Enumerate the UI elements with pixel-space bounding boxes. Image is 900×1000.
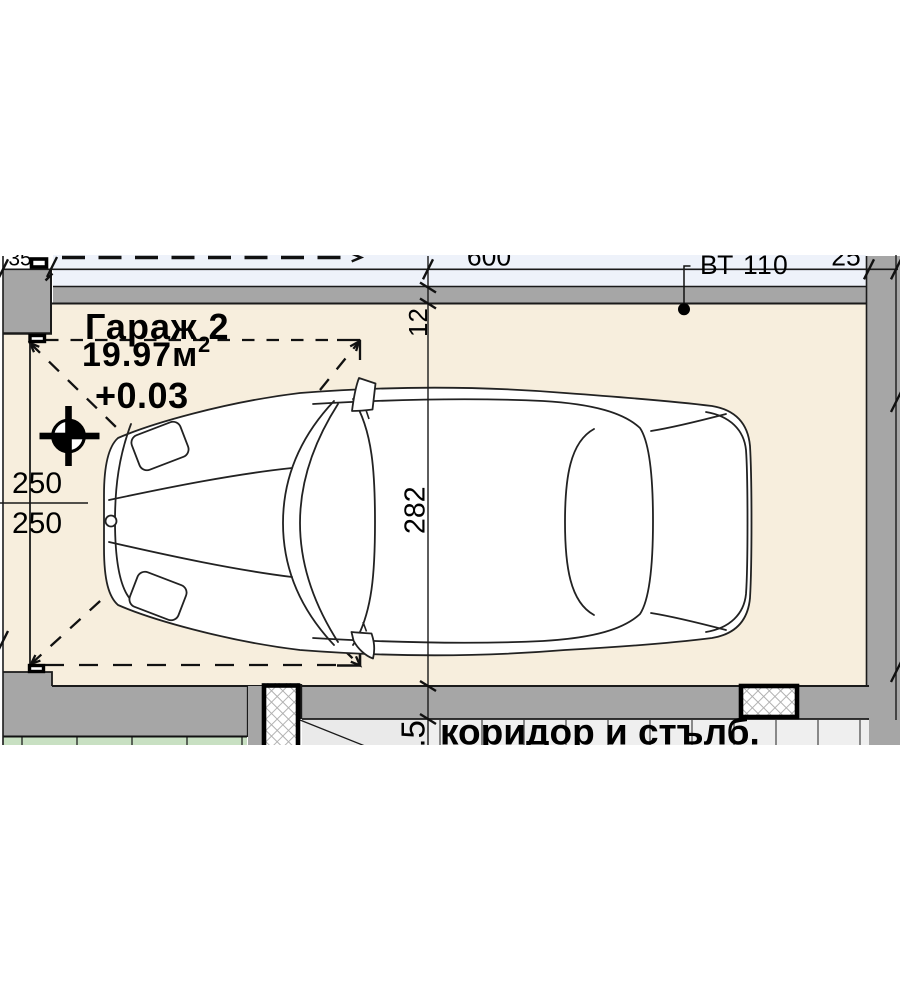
svg-text:282: 282 [400,486,432,534]
svg-text:250: 250 [12,467,62,500]
svg-text:2: 2 [198,332,210,357]
svg-text:250: 250 [12,507,62,540]
svg-text:12: 12 [403,308,433,337]
svg-text:19.97м: 19.97м [82,336,198,374]
svg-text:+0.03: +0.03 [95,375,189,416]
